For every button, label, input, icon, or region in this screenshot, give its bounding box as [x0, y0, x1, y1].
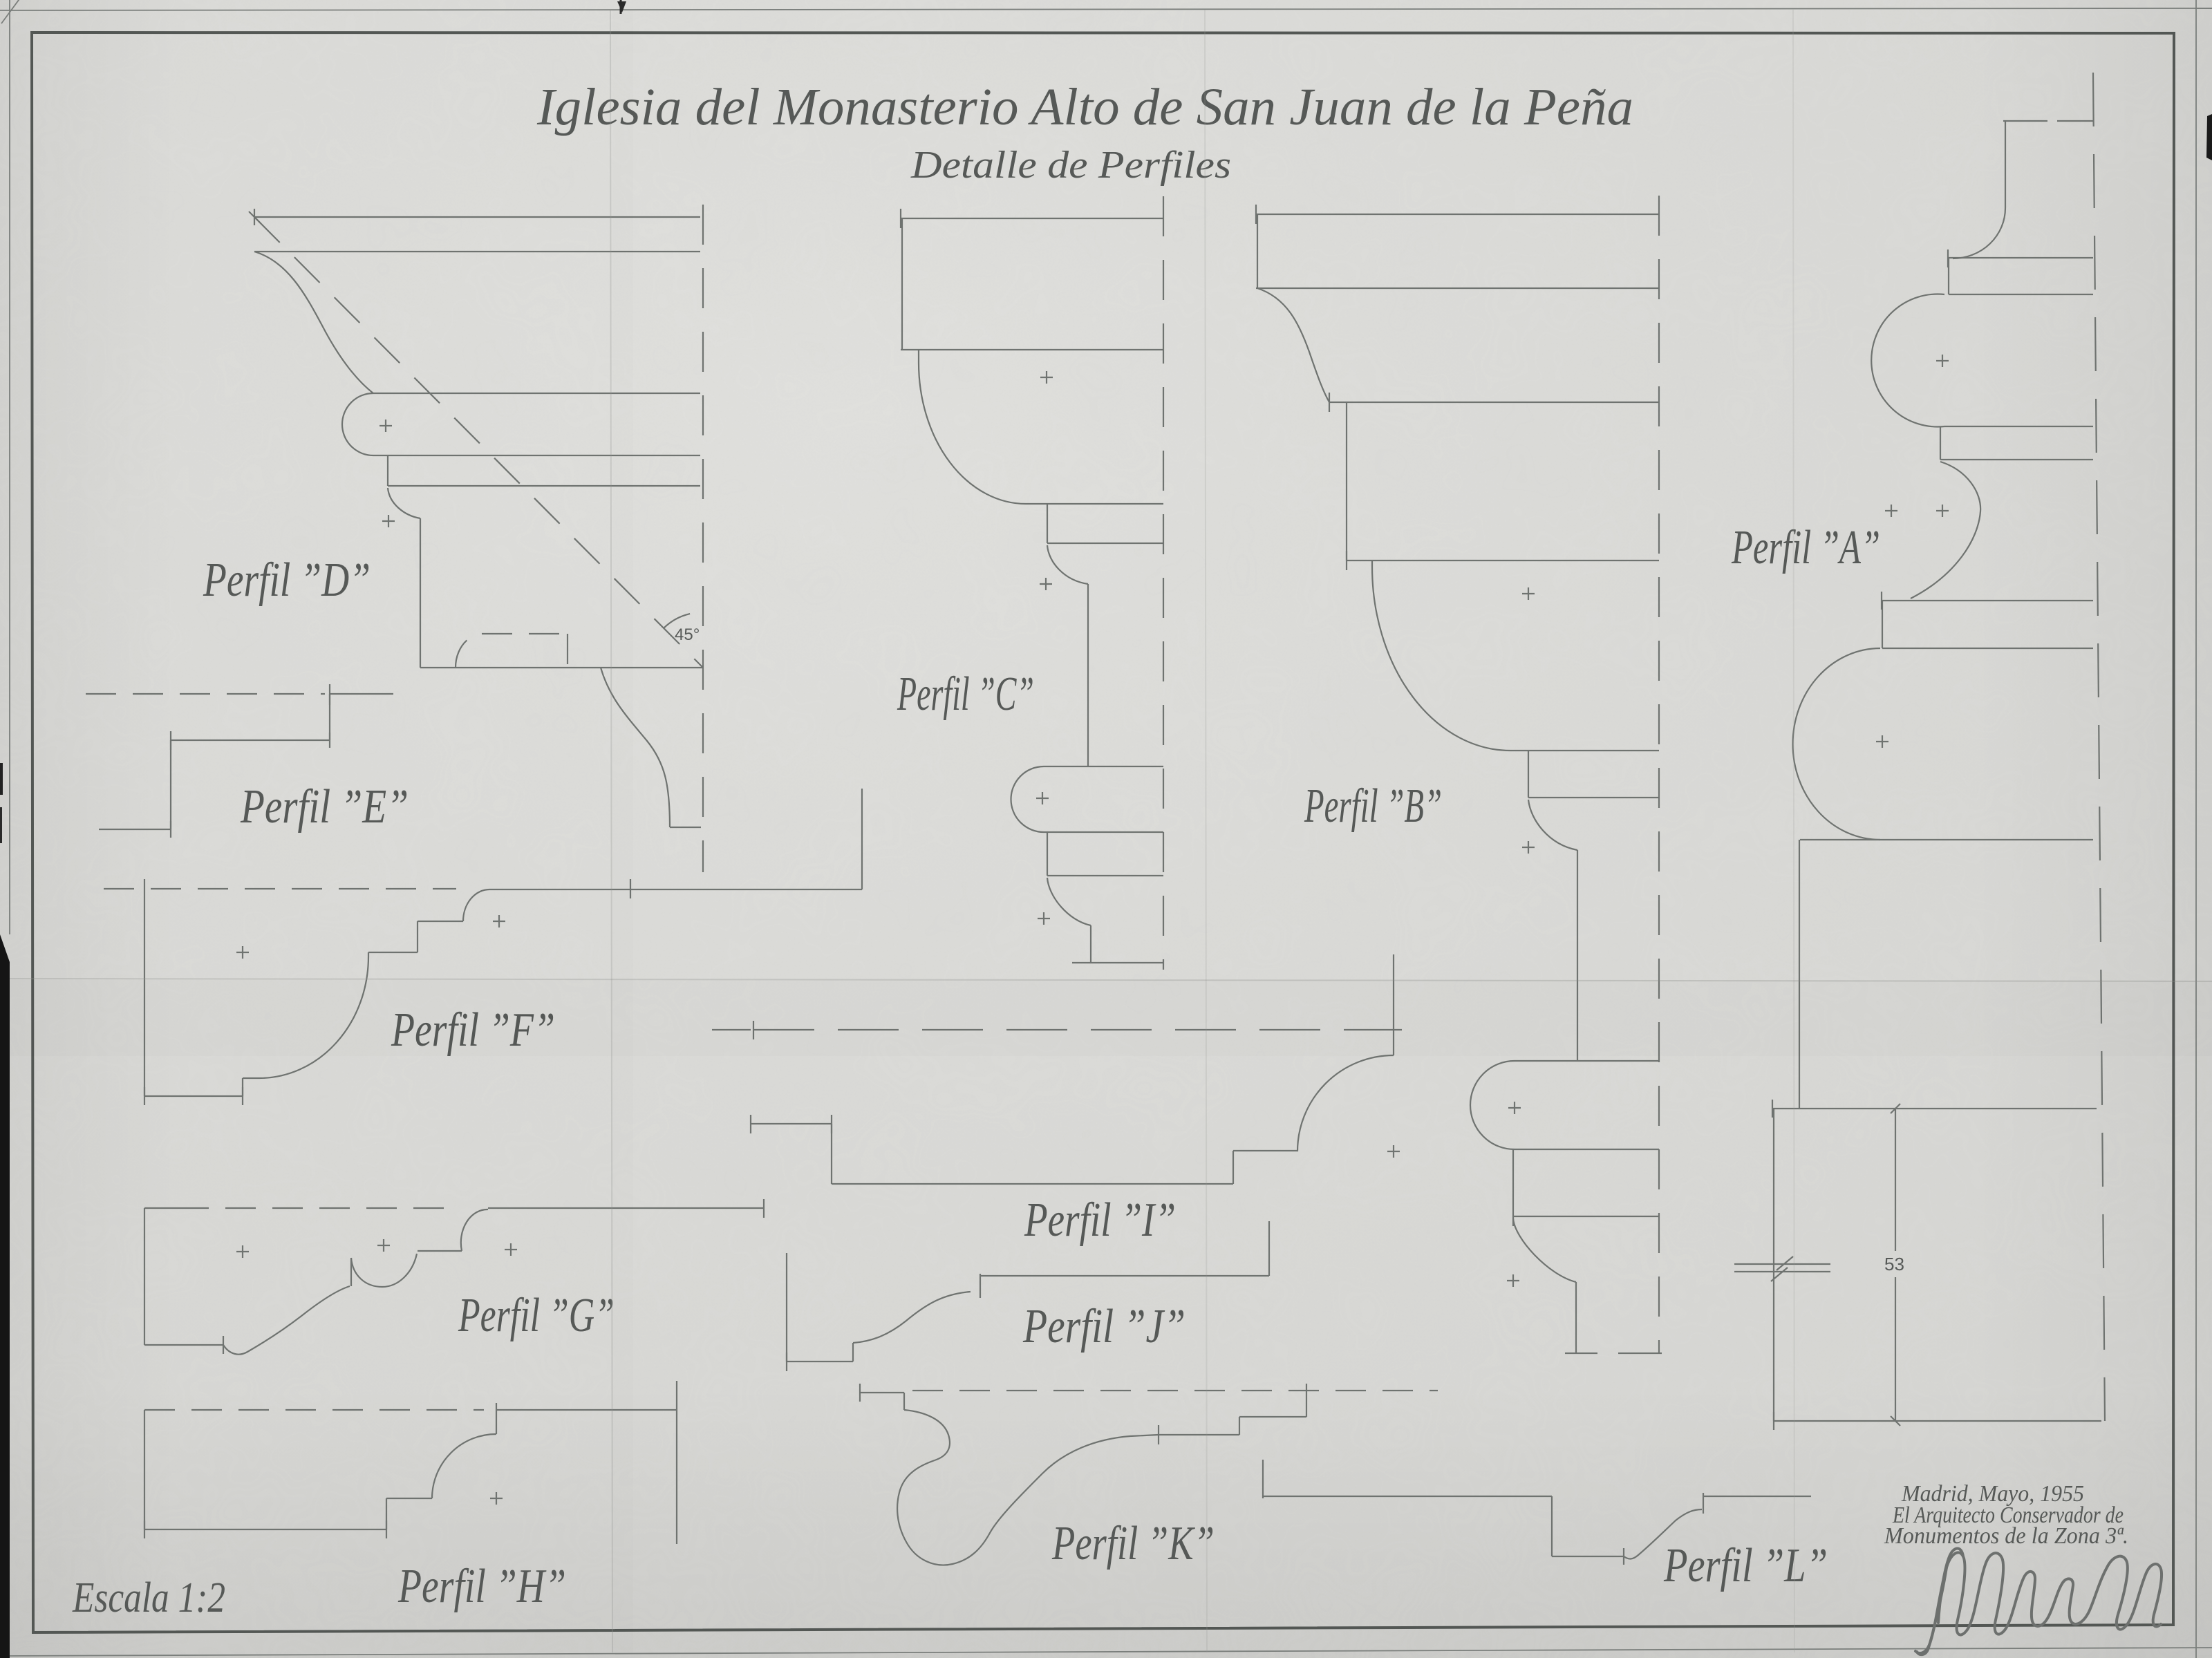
- svg-text:Detalle de Perfiles: Detalle de Perfiles: [910, 144, 1231, 187]
- svg-text:53: 53: [1884, 1254, 1904, 1274]
- svg-text:Perfil ”B”: Perfil ”B”: [1304, 780, 1442, 833]
- svg-text:Perfil ”L”: Perfil ”L”: [1663, 1539, 1828, 1592]
- svg-text:Perfil ”H”: Perfil ”H”: [397, 1560, 566, 1613]
- svg-text:Perfil ”C”: Perfil ”C”: [897, 668, 1034, 721]
- svg-text:Escala 1:2: Escala 1:2: [72, 1574, 225, 1621]
- svg-text:Perfil ”A”: Perfil ”A”: [1731, 521, 1880, 574]
- svg-text:45°: 45°: [675, 625, 700, 644]
- svg-text:Monumentos de la Zona 3ª.: Monumentos de la Zona 3ª.: [1884, 1523, 2128, 1549]
- svg-text:Perfil ”G”: Perfil ”G”: [458, 1289, 615, 1342]
- svg-text:Perfil ”K”: Perfil ”K”: [1051, 1517, 1215, 1570]
- svg-text:Perfil ”E”: Perfil ”E”: [240, 780, 409, 833]
- svg-text:Iglesia del Monasterio Alto de: Iglesia del Monasterio Alto de San Juan …: [536, 78, 1633, 136]
- svg-text:Perfil ”J”: Perfil ”J”: [1022, 1300, 1185, 1353]
- svg-text:Perfil ”D”: Perfil ”D”: [203, 554, 371, 607]
- svg-text:Perfil ”I”: Perfil ”I”: [1024, 1194, 1176, 1247]
